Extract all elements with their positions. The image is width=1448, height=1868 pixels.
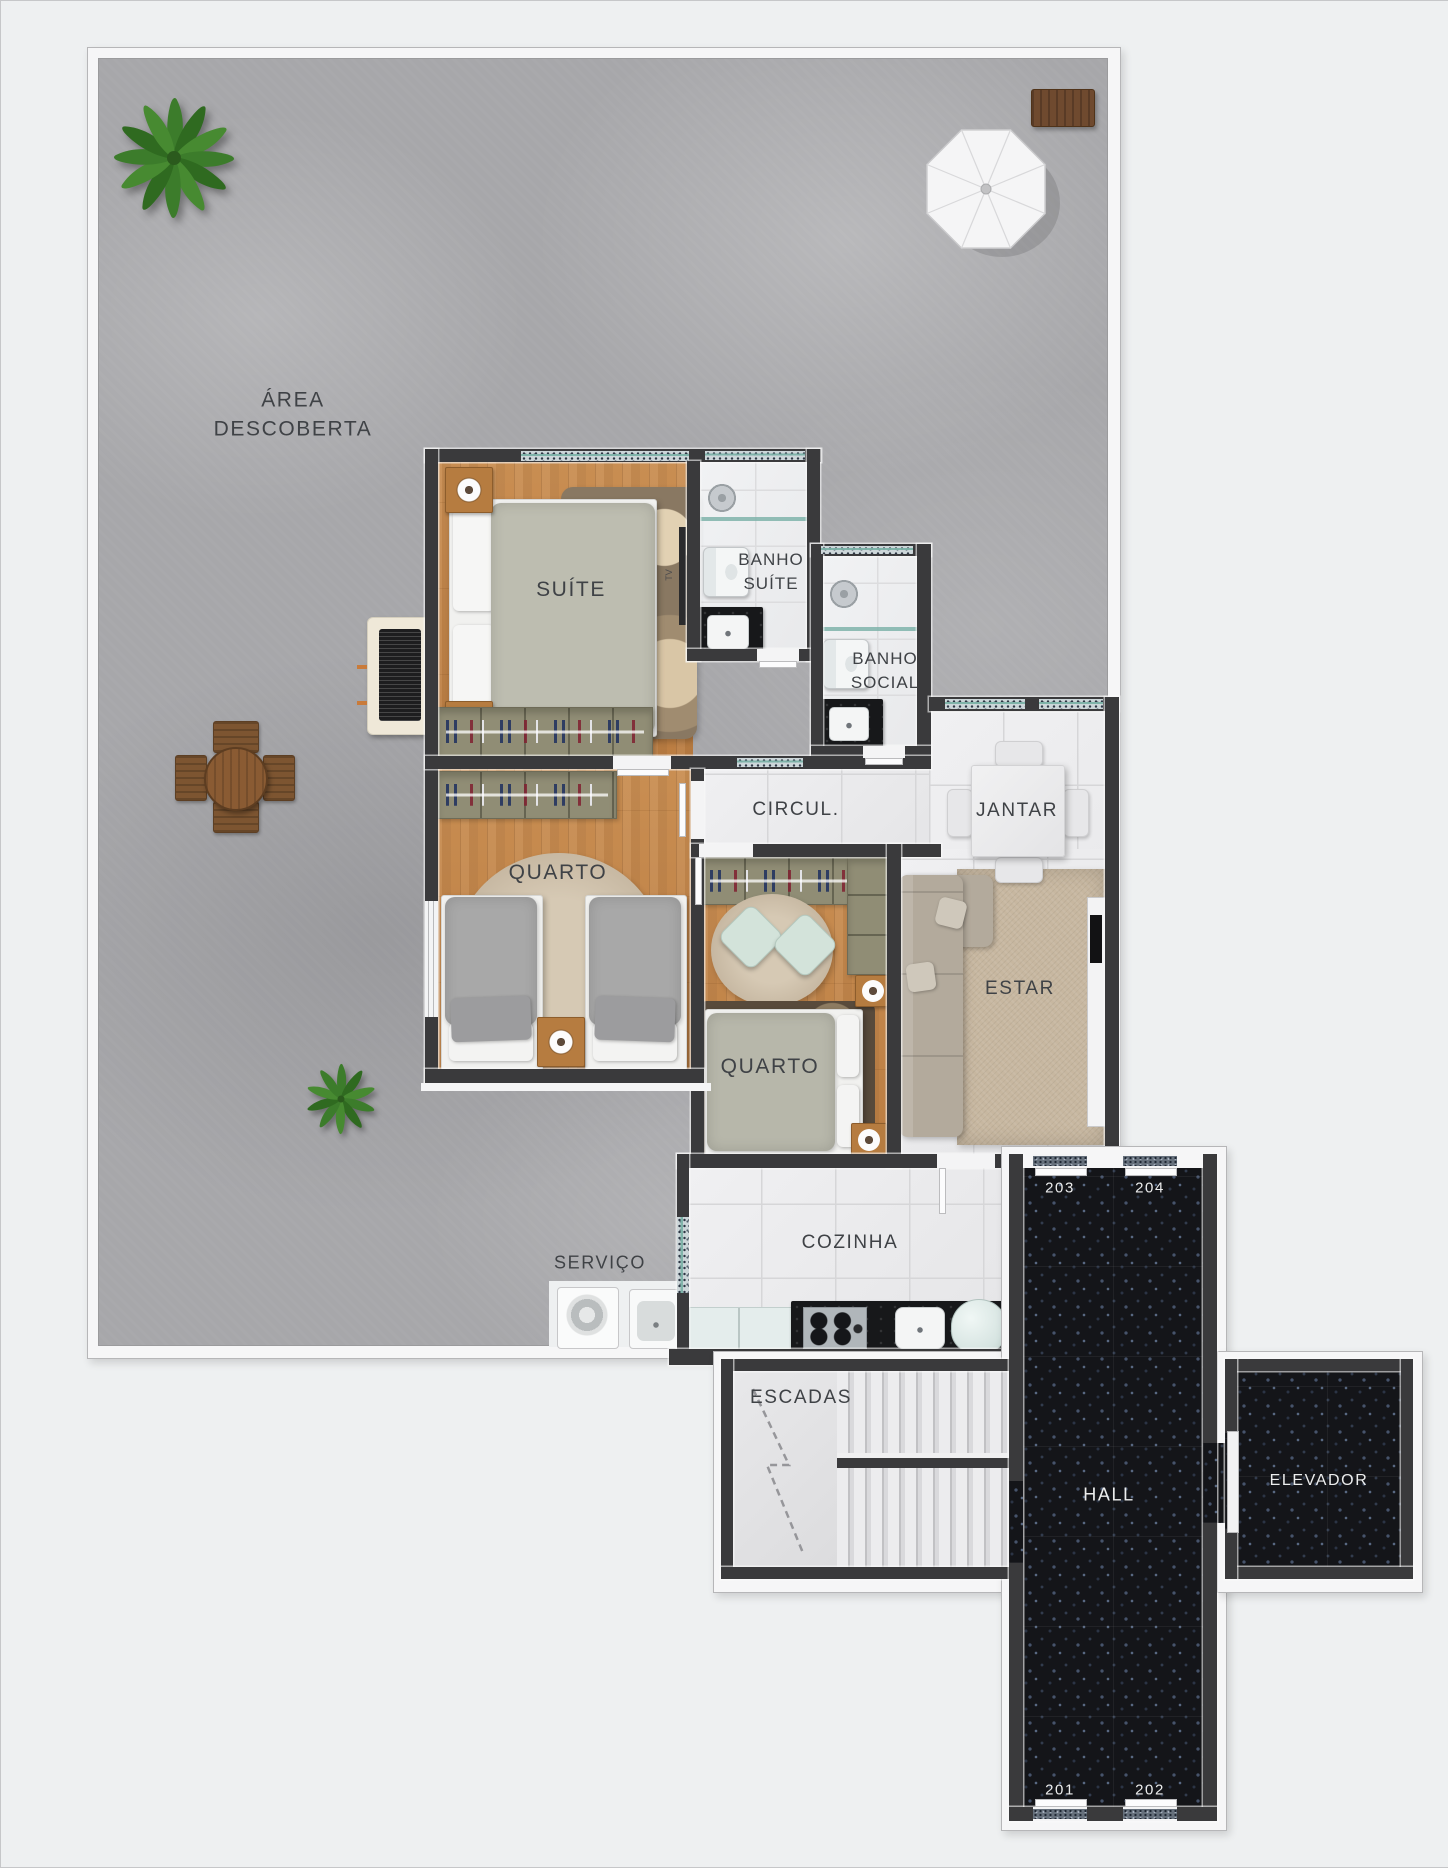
window-sill (705, 451, 805, 460)
wall-segment (1225, 1359, 1413, 1371)
wall-segment (1401, 1359, 1413, 1579)
suite-label: SUÍTE (536, 578, 606, 602)
door-leaf (1125, 1799, 1177, 1807)
door-threshold (1123, 1156, 1177, 1166)
elevator-door (1227, 1431, 1239, 1533)
banho-suite-label: BANHO SUÍTE (738, 548, 803, 596)
circulacao-label: CIRCUL. (752, 799, 839, 821)
quarto1-nightstand (537, 1017, 585, 1067)
window-sill (521, 451, 689, 461)
dining-chair-south (995, 857, 1043, 883)
quarto1-label: QUARTO (509, 861, 608, 885)
window-sill (945, 699, 1025, 709)
hall-label: HALL (1083, 1485, 1134, 1506)
nightstand-tray (858, 1129, 880, 1151)
elevador-label: ELEVADOR (1270, 1472, 1369, 1490)
shower-glass (821, 627, 919, 631)
terrace-label-line2: DESCOBERTA (214, 418, 373, 441)
stair-treads-upper (837, 1371, 1009, 1459)
vanity-sink (829, 707, 869, 741)
shower-head (707, 483, 737, 513)
nightstand-tray (456, 477, 482, 503)
outdoor-chair-west (175, 755, 207, 801)
window-sill (1039, 699, 1103, 709)
unit-204-label: 204 (1135, 1180, 1165, 1197)
wardrobe-clothes (710, 864, 852, 898)
ac-pipe (357, 665, 367, 669)
suite-tv (679, 527, 686, 625)
floor-plan-canvas: ÁREA DESCOBERTA SUÍTE BANHO SUÍTE BANHO … (0, 0, 1448, 1868)
wall-segment (721, 1359, 1021, 1371)
nightstand-tray (862, 980, 884, 1002)
passage-opening (1009, 1481, 1023, 1563)
banho-suite-label-line2: SUÍTE (743, 574, 798, 593)
wall-segment (1105, 697, 1119, 1168)
tv-annotation: TV (664, 569, 674, 581)
servico-label: SERVIÇO (554, 1253, 646, 1274)
escadas-label: ESCADAS (750, 1387, 852, 1409)
wall-trim (421, 1083, 711, 1091)
nightstand-tray (548, 1029, 574, 1055)
banho-social-label-line1: BANHO (852, 649, 917, 668)
kitchen-cabinet (689, 1307, 793, 1353)
laundry-tank-basin (637, 1301, 675, 1341)
wardrobe-clothes (446, 778, 608, 812)
umbrella-pole (981, 184, 991, 194)
window-sill (677, 1217, 689, 1293)
quarto1-pillow-gray (450, 996, 531, 1043)
wall-segment (721, 1567, 1021, 1579)
door-opening (699, 844, 753, 857)
door-opening (863, 746, 905, 758)
palm-fronds (306, 1064, 376, 1134)
wall-segment (687, 649, 820, 661)
door-threshold (1033, 1156, 1087, 1166)
banho-social-label-line2: SOCIAL (851, 673, 919, 692)
washing-machine-door (565, 1293, 609, 1337)
wall-segment (1225, 1567, 1413, 1579)
vanity-sink (707, 615, 749, 649)
door-threshold (1033, 1809, 1087, 1819)
stair-divider-wall (837, 1458, 1009, 1468)
banho-suite-label-line1: BANHO (738, 550, 803, 569)
quarto2-nightstand (851, 1123, 887, 1157)
terrace-label-line1: ÁREA (261, 389, 325, 412)
wall-segment (425, 756, 931, 769)
palm-fronds (114, 98, 234, 218)
wall-segment (887, 844, 901, 1168)
suite-duvet (491, 503, 655, 733)
door-opening (757, 649, 799, 661)
shower-glass (699, 517, 809, 521)
door-leaf (1035, 1168, 1087, 1176)
quarto1-wardrobe (437, 771, 617, 819)
banho-social-label: BANHO SOCIAL (851, 647, 919, 695)
elevator-floor (1237, 1371, 1401, 1567)
wall-segment (687, 461, 700, 661)
door-leaf (679, 783, 686, 837)
door-threshold (1123, 1809, 1177, 1819)
dining-chair-west (947, 789, 973, 837)
door-leaf (865, 758, 903, 765)
door-leaf (695, 857, 702, 905)
quarto2-label: QUARTO (721, 1055, 820, 1079)
terrace-label: ÁREA DESCOBERTA (214, 386, 373, 445)
quarto2-pillow (837, 1015, 859, 1077)
dining-chair-east (1063, 789, 1089, 837)
cozinha-label: COZINHA (802, 1232, 899, 1254)
patio-umbrella (906, 111, 1076, 281)
suite-wardrobe (437, 707, 653, 757)
quarto2-nightstand (855, 975, 891, 1007)
window-sill (737, 758, 803, 767)
passage-opening (1203, 1443, 1217, 1523)
water-dispenser (951, 1299, 1007, 1353)
kitchen-sink (895, 1307, 945, 1349)
door-opening (691, 781, 704, 839)
door-opening (937, 1154, 995, 1168)
dining-chair-north (995, 741, 1043, 767)
unit-202-label: 202 (1135, 1782, 1165, 1799)
quarto1-pillow-gray (594, 996, 675, 1043)
stair-direction-arrow (743, 1383, 833, 1559)
window-sill (821, 546, 913, 554)
ac-pipe (357, 701, 367, 705)
shower-head (829, 579, 859, 609)
door-leaf (939, 1168, 946, 1214)
door-leaf (1035, 1799, 1087, 1807)
wardrobe-clothes (446, 714, 644, 750)
door-leaf (617, 769, 669, 776)
outdoor-table (204, 747, 268, 811)
wall-segment (425, 1069, 704, 1083)
estar-label: ESTAR (985, 978, 1055, 1000)
jantar-label: JANTAR (976, 800, 1058, 822)
quarto2-duvet (707, 1013, 835, 1151)
door-opening (613, 756, 671, 769)
palm-plant-large (109, 93, 239, 223)
sofa-pillow (905, 961, 937, 993)
unit-203-label: 203 (1045, 1180, 1075, 1197)
door-leaf (1125, 1168, 1177, 1176)
cooktop-stove (803, 1307, 867, 1349)
window (425, 901, 438, 1017)
suite-nightstand (445, 467, 493, 513)
patio-bench (1031, 89, 1095, 127)
wall-segment (721, 1359, 733, 1579)
unit-201-label: 201 (1045, 1782, 1075, 1799)
door-leaf (759, 661, 797, 668)
wall-segment (811, 544, 823, 758)
stair-treads-lower (837, 1468, 1009, 1567)
ac-grille (379, 629, 421, 721)
suite-pillow (453, 509, 495, 611)
palm-plant-small (303, 1061, 379, 1137)
tv-screen (1090, 915, 1102, 963)
